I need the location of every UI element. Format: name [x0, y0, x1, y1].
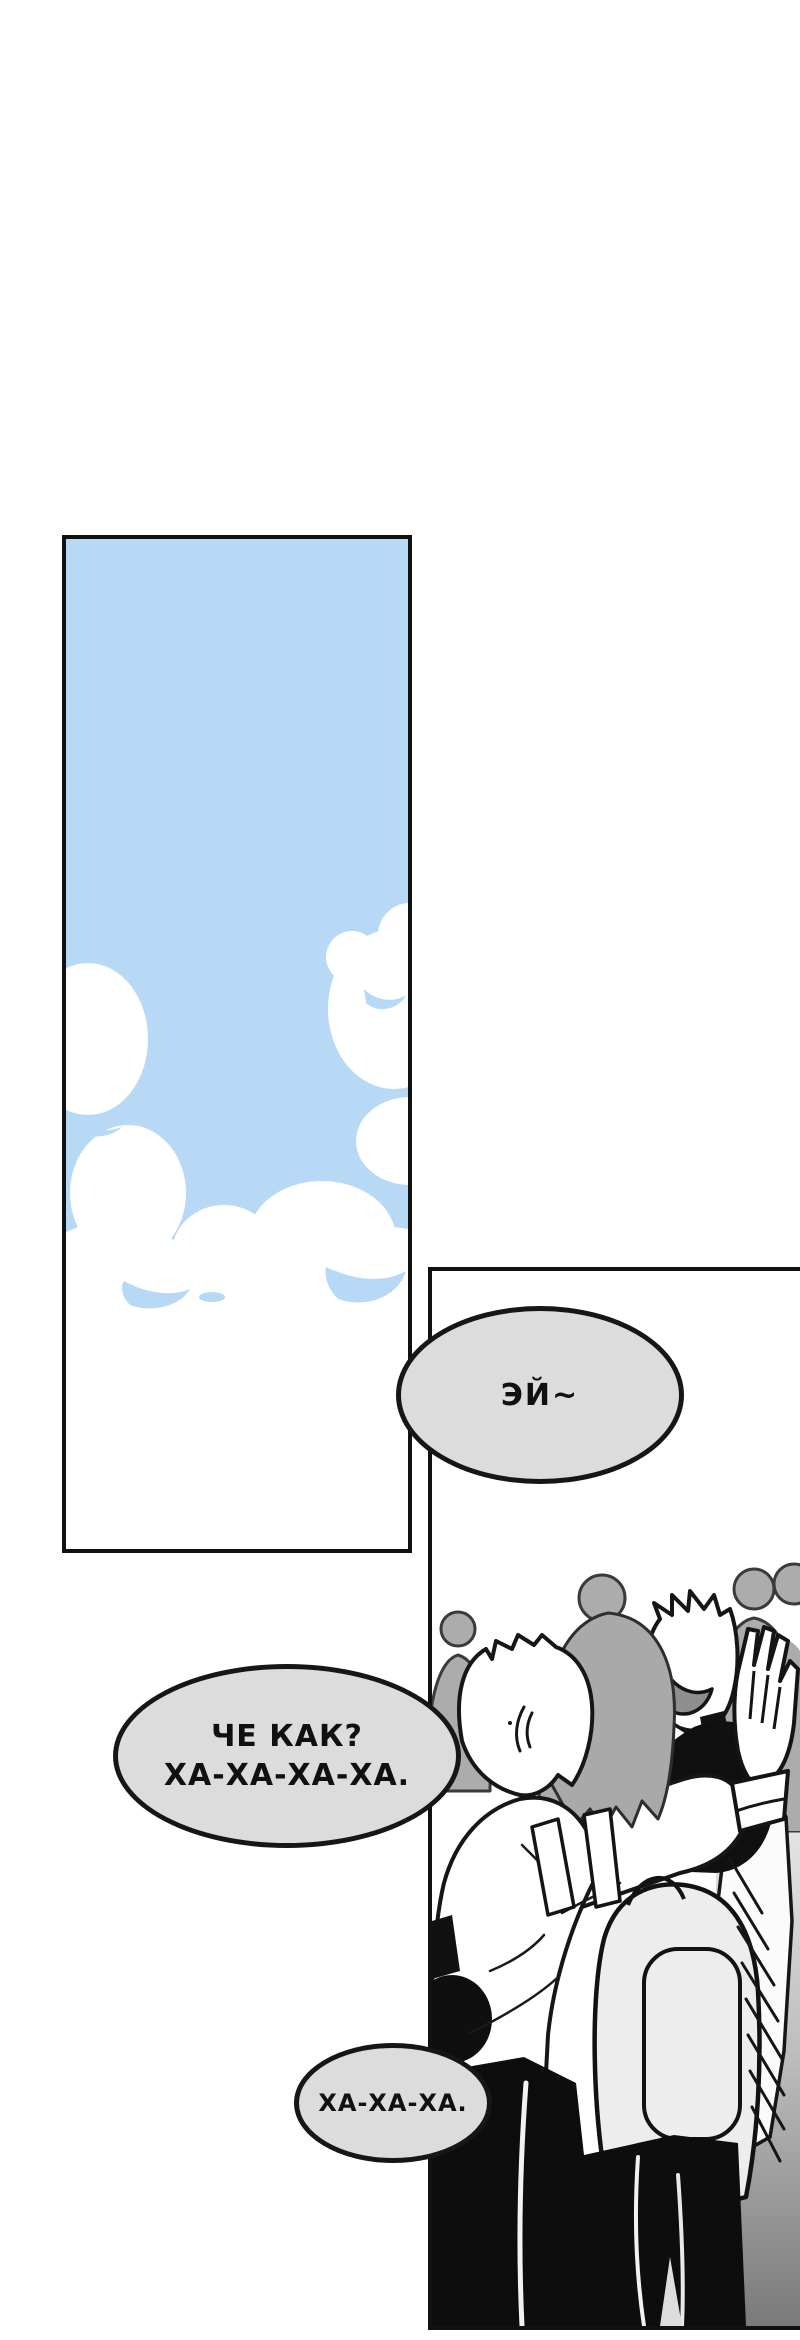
left-character-hair	[459, 1635, 592, 1795]
cloud-right-bump1	[326, 931, 378, 983]
cloud-bottom-mass	[66, 1281, 408, 1549]
crowd-head-3	[734, 1569, 774, 1609]
speech-line-1: ЧЕ КАК?	[164, 1717, 410, 1756]
sky-panel-art	[66, 539, 408, 1549]
sky-panel	[62, 535, 412, 1553]
speech-bubble-haha: ХА-ХА-ХА.	[294, 2043, 492, 2163]
speech-bubble-hey: ЭЙ~	[396, 1306, 684, 1484]
speech-text: ЭЙ~	[501, 1378, 579, 1413]
speech-bubble-chekak: ЧЕ КАК? ХА-ХА-ХА-ХА.	[113, 1664, 461, 1848]
speech-text: ЧЕ КАК? ХА-ХА-ХА-ХА.	[164, 1717, 410, 1795]
hair-dot	[508, 1721, 512, 1725]
speech-text: ХА-ХА-ХА.	[318, 2089, 467, 2117]
crowd-head-1	[441, 1612, 475, 1646]
speech-line-2: ХА-ХА-ХА-ХА.	[164, 1756, 410, 1795]
crowd-head-4	[774, 1564, 800, 1604]
sky-wisp-dot	[199, 1292, 225, 1302]
